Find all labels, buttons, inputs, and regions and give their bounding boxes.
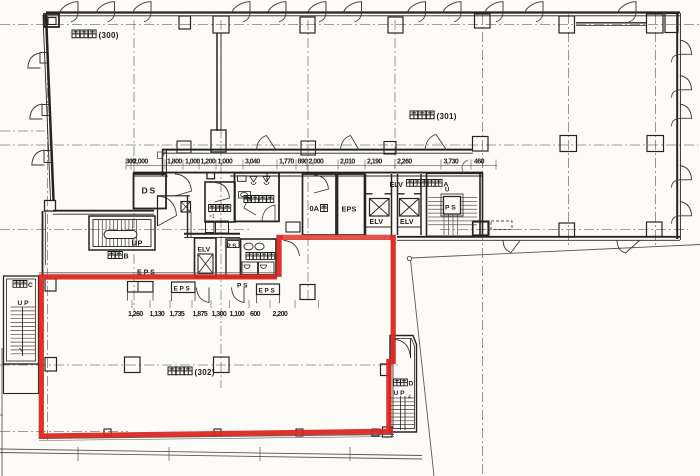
- svg-text:D: D: [142, 186, 148, 196]
- svg-text:D: D: [409, 381, 414, 388]
- svg-text:2,000: 2,000: [133, 158, 148, 165]
- svg-text:460: 460: [474, 158, 485, 165]
- svg-text:2,190: 2,190: [367, 158, 382, 165]
- svg-text:890: 890: [298, 158, 309, 165]
- svg-text:C: C: [28, 282, 33, 289]
- svg-text:(302): (302): [195, 368, 215, 377]
- svg-text:1,875: 1,875: [193, 311, 208, 318]
- svg-text:1,000: 1,000: [218, 158, 233, 165]
- svg-text:S: S: [150, 186, 156, 196]
- svg-text:4: 4: [408, 395, 411, 401]
- svg-text:1,200: 1,200: [201, 158, 216, 165]
- svg-text:2,200: 2,200: [273, 311, 288, 318]
- svg-text:×1: ×1: [209, 214, 215, 220]
- svg-text:600: 600: [250, 311, 261, 318]
- svg-text:3,730: 3,730: [444, 158, 459, 165]
- svg-text:0A: 0A: [310, 204, 320, 213]
- svg-text:UP: UP: [132, 239, 144, 248]
- svg-text:1,260: 1,260: [128, 311, 143, 318]
- svg-text:(300): (300): [99, 31, 119, 40]
- svg-text:(301): (301): [437, 112, 457, 121]
- svg-text:ELV: ELV: [400, 219, 414, 226]
- svg-text:ELV: ELV: [198, 247, 211, 254]
- svg-text:U P: U P: [18, 300, 30, 307]
- svg-text:1,000: 1,000: [185, 158, 200, 165]
- svg-text:1,770: 1,770: [279, 158, 294, 165]
- svg-text:E P S: E P S: [174, 286, 191, 293]
- svg-text:1,100: 1,100: [230, 311, 245, 318]
- svg-text:P S: P S: [237, 283, 248, 290]
- svg-text:ELV: ELV: [390, 180, 404, 189]
- svg-text:1,130: 1,130: [150, 311, 165, 318]
- svg-text:1,800: 1,800: [167, 158, 182, 165]
- svg-text:P S: P S: [445, 205, 456, 212]
- svg-text:ELV: ELV: [370, 219, 384, 226]
- svg-text:2,010: 2,010: [340, 158, 355, 165]
- svg-text:2,000: 2,000: [309, 158, 324, 165]
- svg-text:E P S: E P S: [259, 288, 276, 295]
- svg-text:B: B: [124, 254, 129, 261]
- svg-text:1,735: 1,735: [170, 311, 185, 318]
- svg-text:EPS: EPS: [342, 205, 357, 214]
- svg-text:2,260: 2,260: [397, 158, 412, 165]
- svg-text:1,300: 1,300: [212, 311, 227, 318]
- svg-text:U P: U P: [394, 390, 406, 397]
- svg-text:P S: P S: [227, 243, 237, 250]
- svg-text:U: U: [445, 188, 449, 194]
- svg-text:3,040: 3,040: [245, 158, 260, 165]
